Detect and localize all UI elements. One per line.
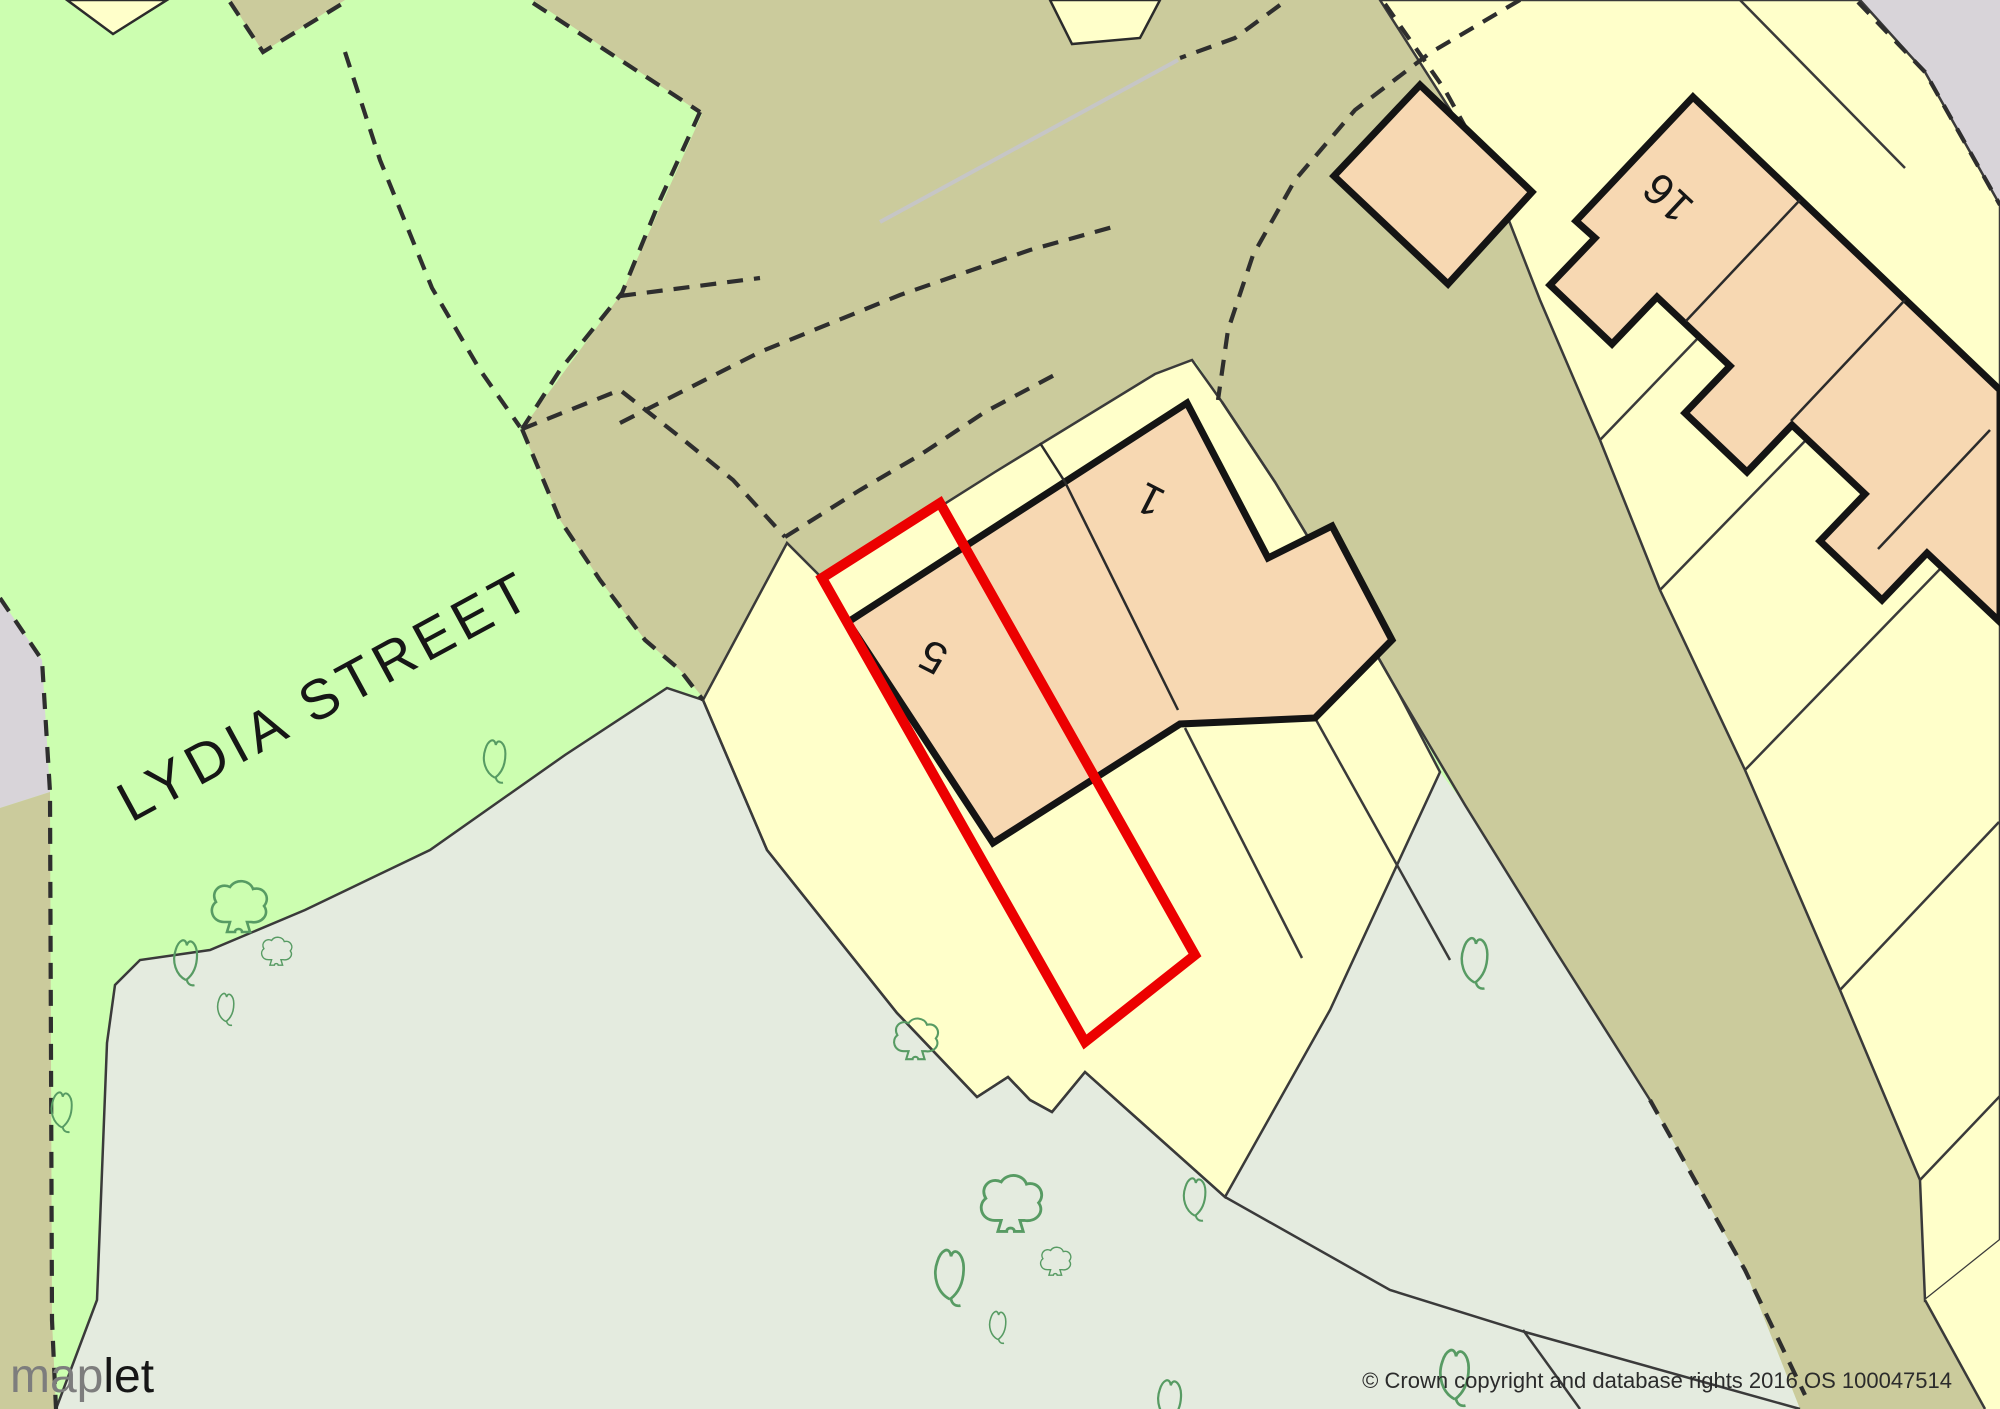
map-viewport: LYDIA STREET 5 1 16 maplet © Crown copyr… bbox=[0, 0, 2000, 1409]
maplet-logo: maplet bbox=[10, 1350, 154, 1403]
map-canvas[interactable]: LYDIA STREET 5 1 16 maplet © Crown copyr… bbox=[0, 0, 2000, 1409]
logo-suffix: let bbox=[103, 1350, 154, 1403]
copyright-attribution: © Crown copyright and database rights 20… bbox=[1362, 1368, 1952, 1393]
road-strip-west bbox=[0, 792, 56, 1409]
logo-prefix: map bbox=[10, 1350, 103, 1403]
